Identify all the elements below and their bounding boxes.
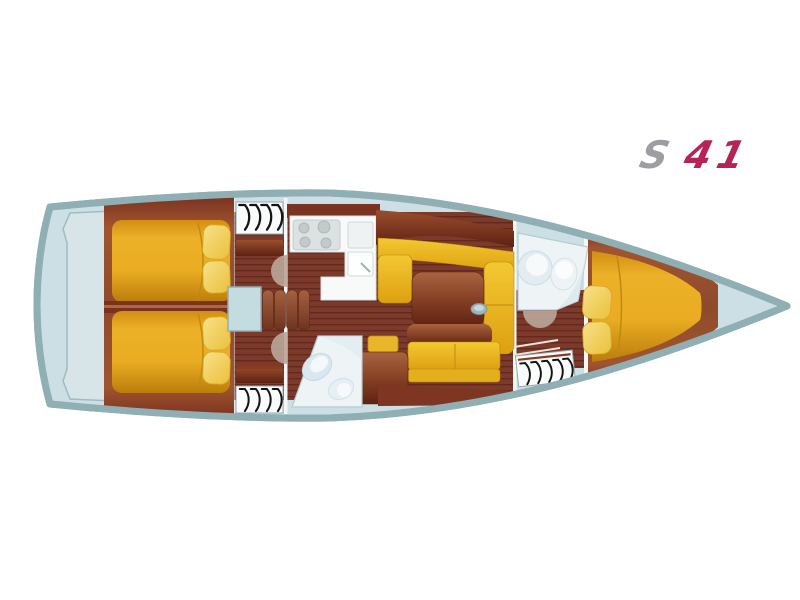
cabinet [236,240,283,256]
sink [348,222,373,248]
salon-settee-starboard [407,324,500,382]
floor-plan-drawing [0,0,800,600]
nav-seat [368,336,398,352]
brand-logo: S41 [636,136,755,174]
burner [300,237,310,247]
toilet-lid [337,383,351,397]
burner [321,238,331,248]
aft-cabin-port [112,220,231,302]
pillow [202,316,231,350]
toilet-lid [555,261,573,279]
engine-compartment [228,287,261,331]
pillow [582,321,612,354]
settee-seat [408,342,500,370]
wardrobe-starboard [236,366,283,413]
pillow [202,261,230,294]
pillow [202,352,230,385]
boat-floor-plan-page: S41 [0,0,800,600]
pillow [202,224,231,259]
burner [318,221,330,233]
burner [299,223,309,233]
table-leaf [412,272,484,326]
aft-cabin-starboard [112,311,231,393]
forward-head [518,233,588,310]
pillow [582,285,612,320]
settee-arm-left [378,255,412,303]
forward-cabin [582,226,718,386]
brand-model-number: 41 [680,133,756,177]
settee-front [408,369,500,382]
cup-holder-inner [474,305,484,311]
shower-basin-inner [526,254,548,276]
wardrobe-port [236,202,283,256]
